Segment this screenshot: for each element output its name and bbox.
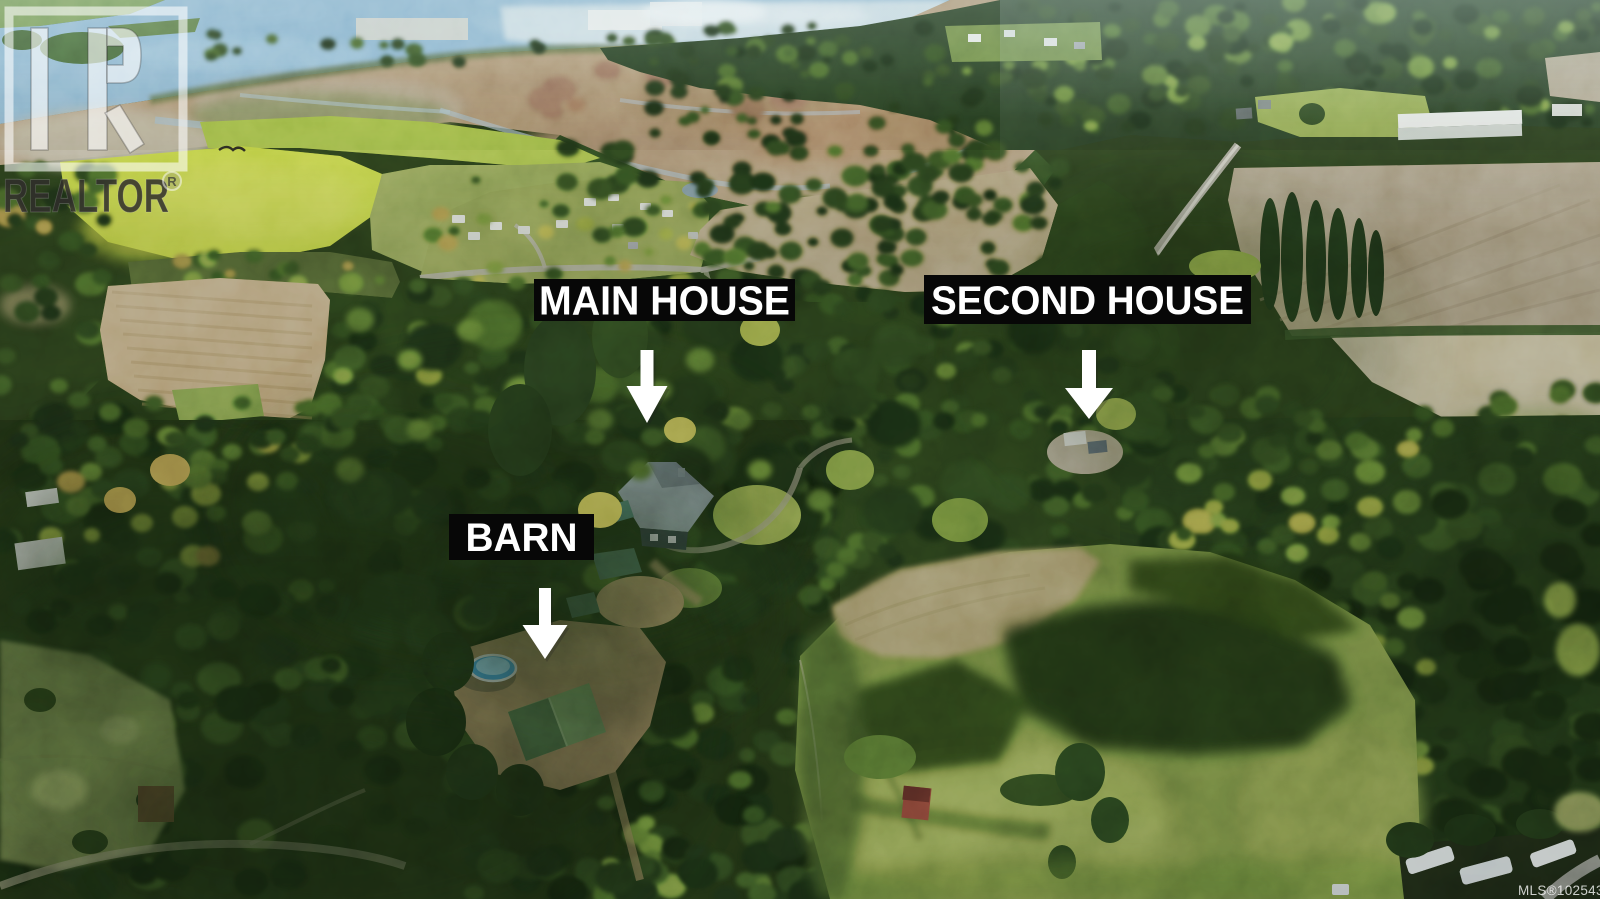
svg-text:MAIN HOUSE: MAIN HOUSE bbox=[539, 278, 790, 324]
svg-text:MLS®1025437: MLS®1025437 bbox=[1518, 883, 1600, 898]
svg-text:SECOND HOUSE: SECOND HOUSE bbox=[931, 279, 1244, 323]
svg-text:BARN: BARN bbox=[466, 516, 578, 560]
